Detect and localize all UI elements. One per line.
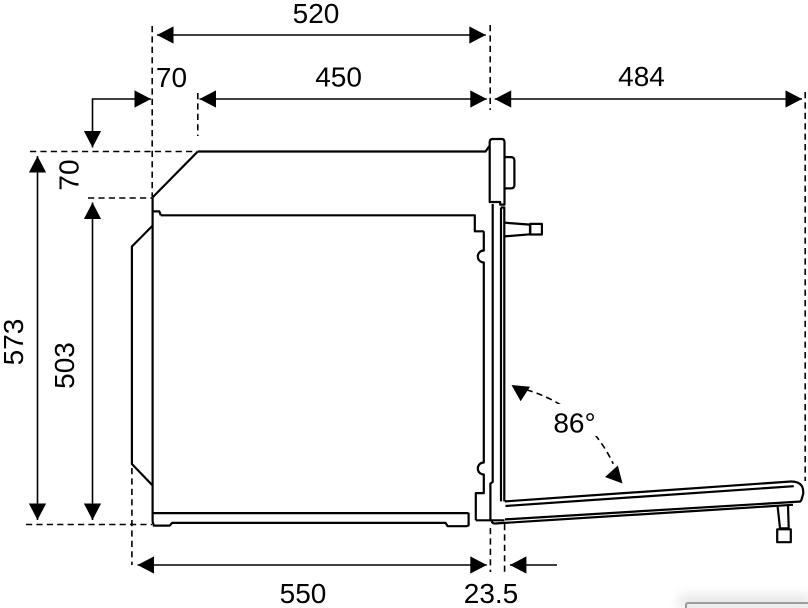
svg-text:23.5: 23.5 [464,578,519,608]
svg-text:484: 484 [618,61,665,92]
svg-text:573: 573 [0,319,29,366]
svg-text:503: 503 [49,342,80,389]
svg-text:450: 450 [315,62,362,93]
svg-text:70: 70 [54,159,85,190]
svg-text:520: 520 [293,0,340,29]
svg-text:550: 550 [280,578,327,608]
svg-text:86°: 86° [553,408,595,439]
svg-text:70: 70 [156,62,187,93]
